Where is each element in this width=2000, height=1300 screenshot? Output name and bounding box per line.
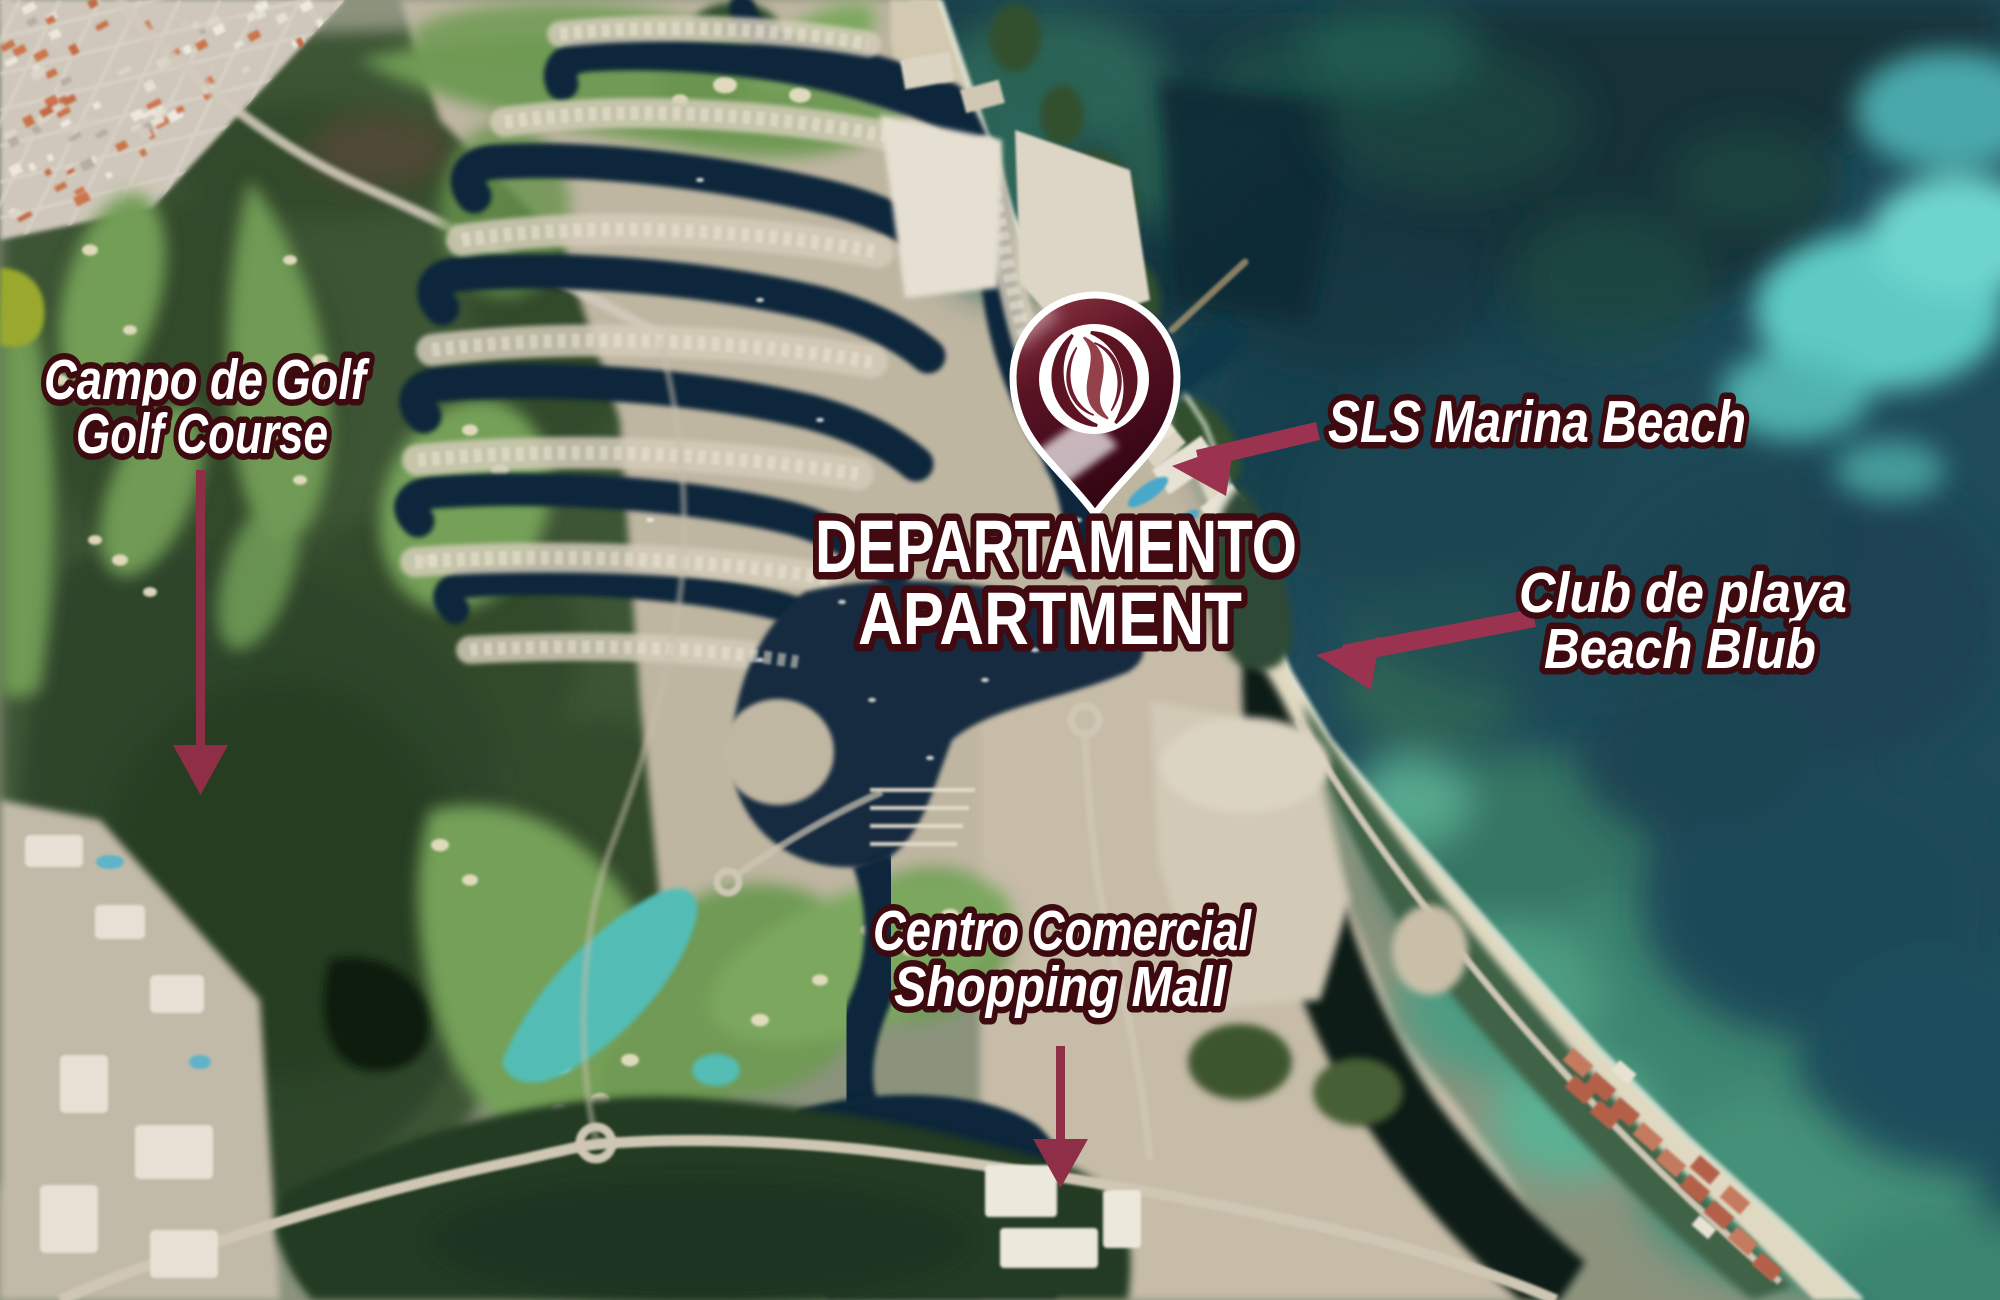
svg-text:APARTMENT: APARTMENT xyxy=(858,577,1242,660)
svg-text:SLS Marina Beach: SLS Marina Beach xyxy=(1328,389,1746,455)
svg-text:Beach Blub: Beach Blub xyxy=(1544,617,1816,681)
svg-text:Shopping Mall: Shopping Mall xyxy=(894,955,1227,1019)
svg-text:Club de playa: Club de playa xyxy=(1519,561,1847,625)
svg-text:Golf Course: Golf Course xyxy=(76,402,328,466)
svg-text:Centro Comercial: Centro Comercial xyxy=(873,899,1252,963)
svg-text:DEPARTAMENTO: DEPARTAMENTO xyxy=(815,505,1297,588)
